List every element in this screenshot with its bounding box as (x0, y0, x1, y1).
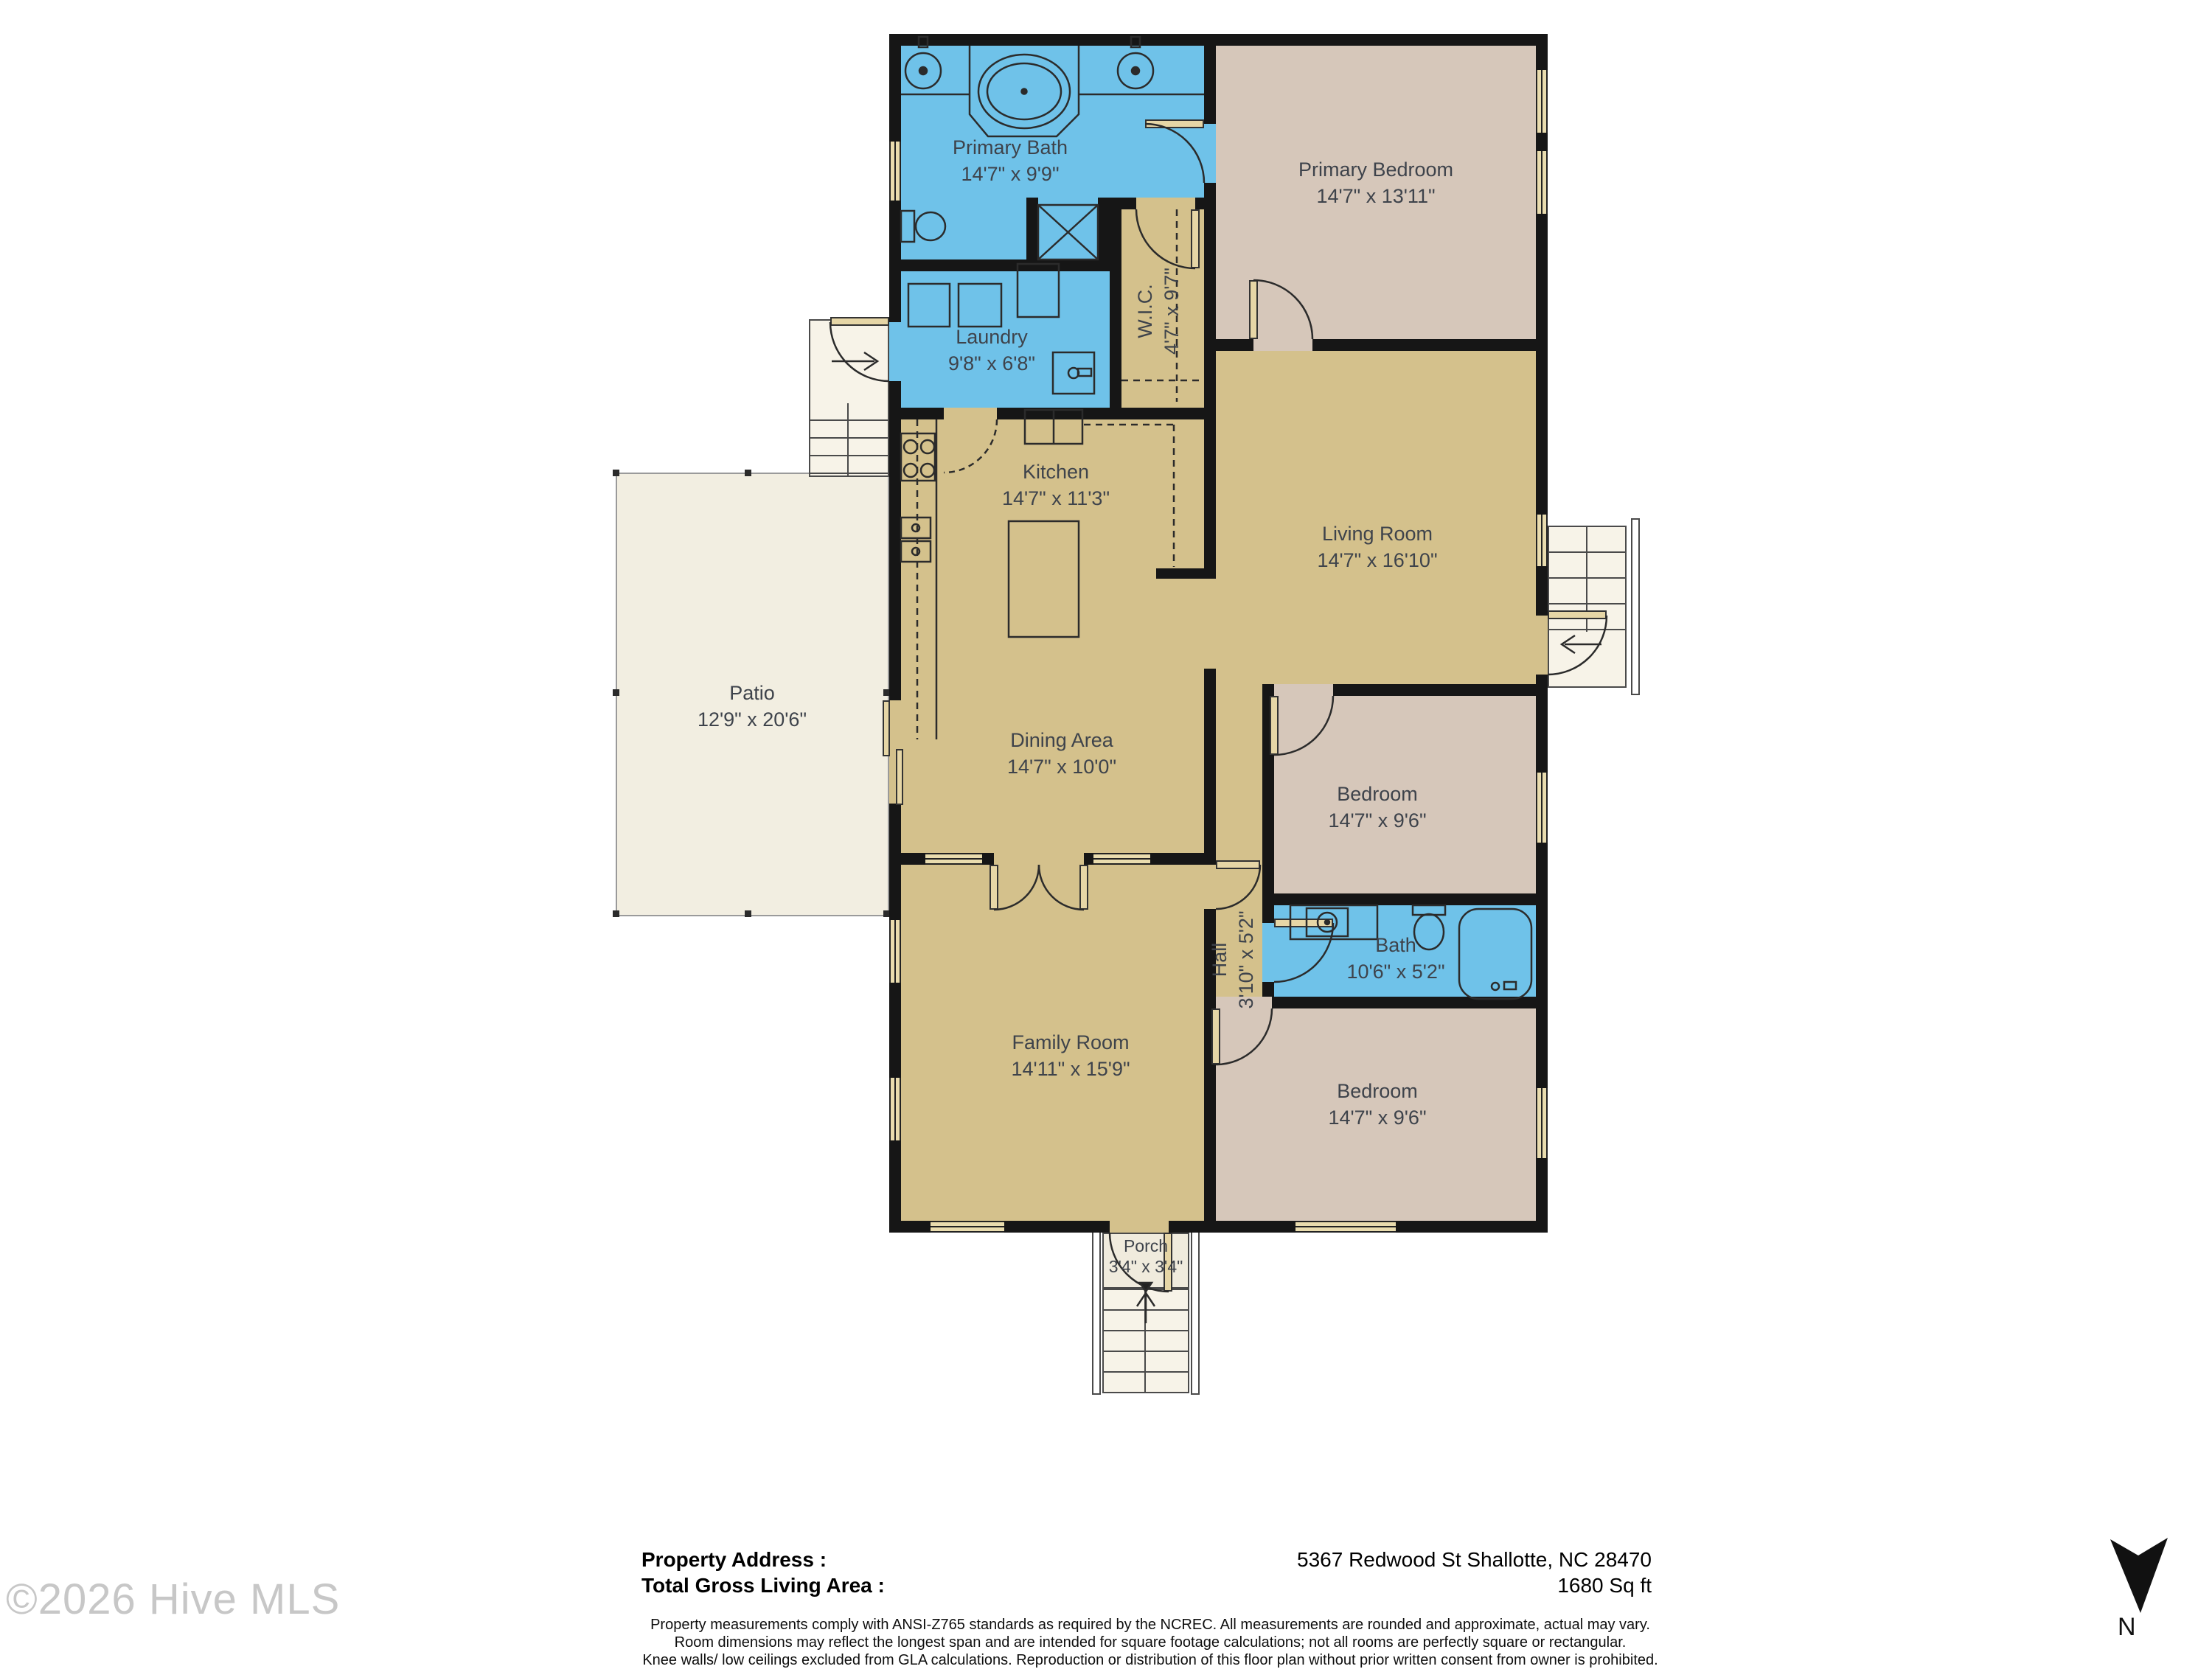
north-arrow-icon (0, 0, 2212, 1659)
north-label: N (2118, 1613, 2136, 1642)
floor-plan: Primary Bath 14'7" x 9'9" Primary Bedroo… (0, 0, 2212, 1659)
